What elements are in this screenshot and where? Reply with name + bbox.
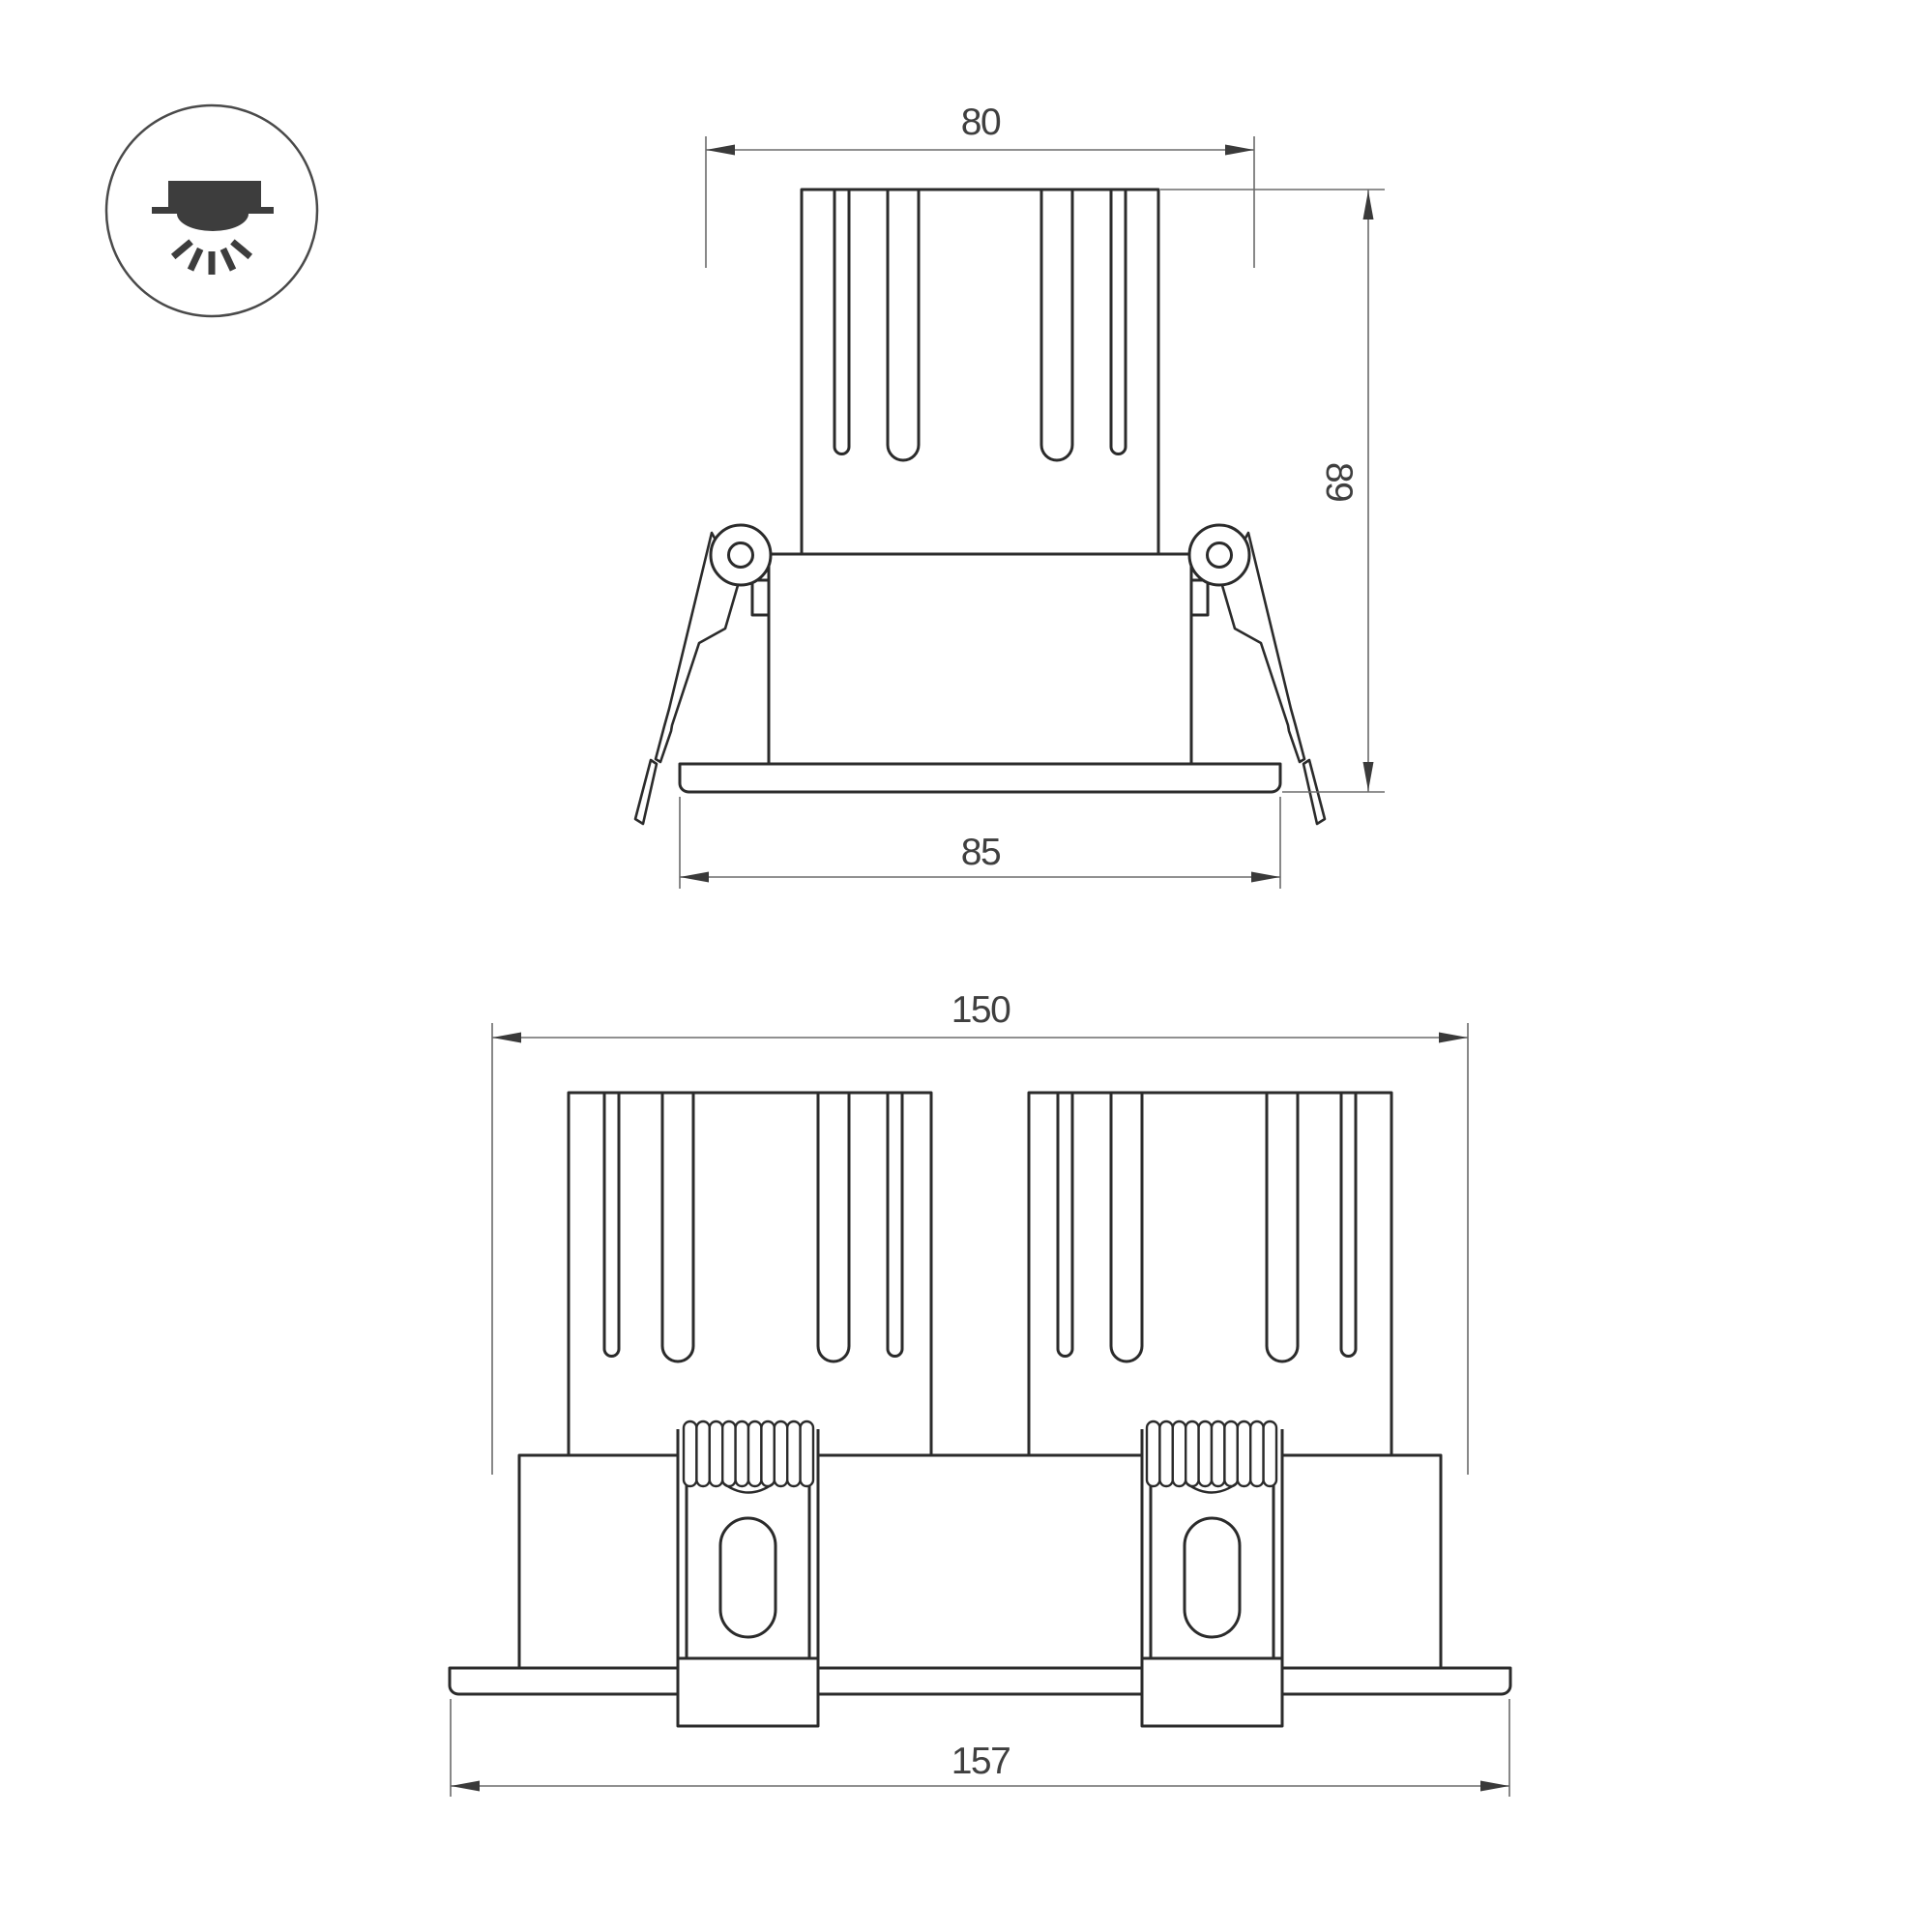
dim-flange-width: 85: [680, 797, 1280, 889]
lamp-body: [519, 1455, 1441, 1668]
arrowhead-up-icon: [1363, 190, 1374, 220]
arrowhead-right-icon: [1225, 145, 1254, 156]
dim-flange-width: 157: [451, 1699, 1509, 1797]
clip-pivot-hole-left: [729, 543, 753, 568]
trim-flange: [680, 764, 1280, 792]
mounting-bracket-left: [678, 1421, 818, 1726]
arrowhead-down-icon: [1363, 762, 1374, 791]
arrowhead-right-icon: [1480, 1781, 1509, 1792]
arrowhead-right-icon: [1251, 872, 1280, 883]
side-view-single-module: 80 89 85: [635, 102, 1385, 889]
clip-tab-left: [752, 580, 769, 615]
clip-tab-right: [1191, 580, 1208, 615]
front-view-twin-module: 150 157: [450, 989, 1510, 1797]
module-left-heatsink: [569, 1093, 931, 1455]
icon-light-rays: [173, 242, 250, 275]
module-right-heatsink: [1029, 1093, 1391, 1455]
dim-flange-width-label: 85: [961, 832, 1001, 873]
technical-drawing: 80 89 85: [0, 0, 1932, 1932]
recessed-downlight-icon: [106, 105, 317, 316]
heatsink: [802, 190, 1158, 554]
dim-top-width-label: 80: [961, 102, 1001, 143]
icon-ceiling-line: [152, 207, 274, 214]
icon-housing: [168, 181, 261, 208]
arrowhead-left-icon: [492, 1033, 521, 1043]
coil-spring: [1147, 1421, 1276, 1493]
arrowhead-left-icon: [680, 872, 709, 883]
mounting-bracket-right: [1142, 1421, 1282, 1726]
bracket-slot: [1185, 1518, 1240, 1637]
lamp-housing: [769, 554, 1191, 764]
arrowhead-right-icon: [1439, 1033, 1468, 1043]
trim-flange: [450, 1668, 1510, 1694]
spring-clip-left-tip: [635, 760, 657, 824]
clip-pivot-hole-right: [1208, 543, 1232, 568]
coil-spring: [684, 1421, 813, 1493]
dim-overall-width-label: 150: [951, 989, 1010, 1031]
dim-height: 89: [1160, 190, 1385, 792]
icon-lamp-dome: [177, 214, 249, 231]
dim-height-label: 89: [1318, 462, 1360, 501]
arrowhead-left-icon: [451, 1781, 480, 1792]
arrowhead-left-icon: [706, 145, 735, 156]
dim-flange-width-label: 157: [951, 1741, 1010, 1782]
bracket-slot: [720, 1518, 776, 1637]
